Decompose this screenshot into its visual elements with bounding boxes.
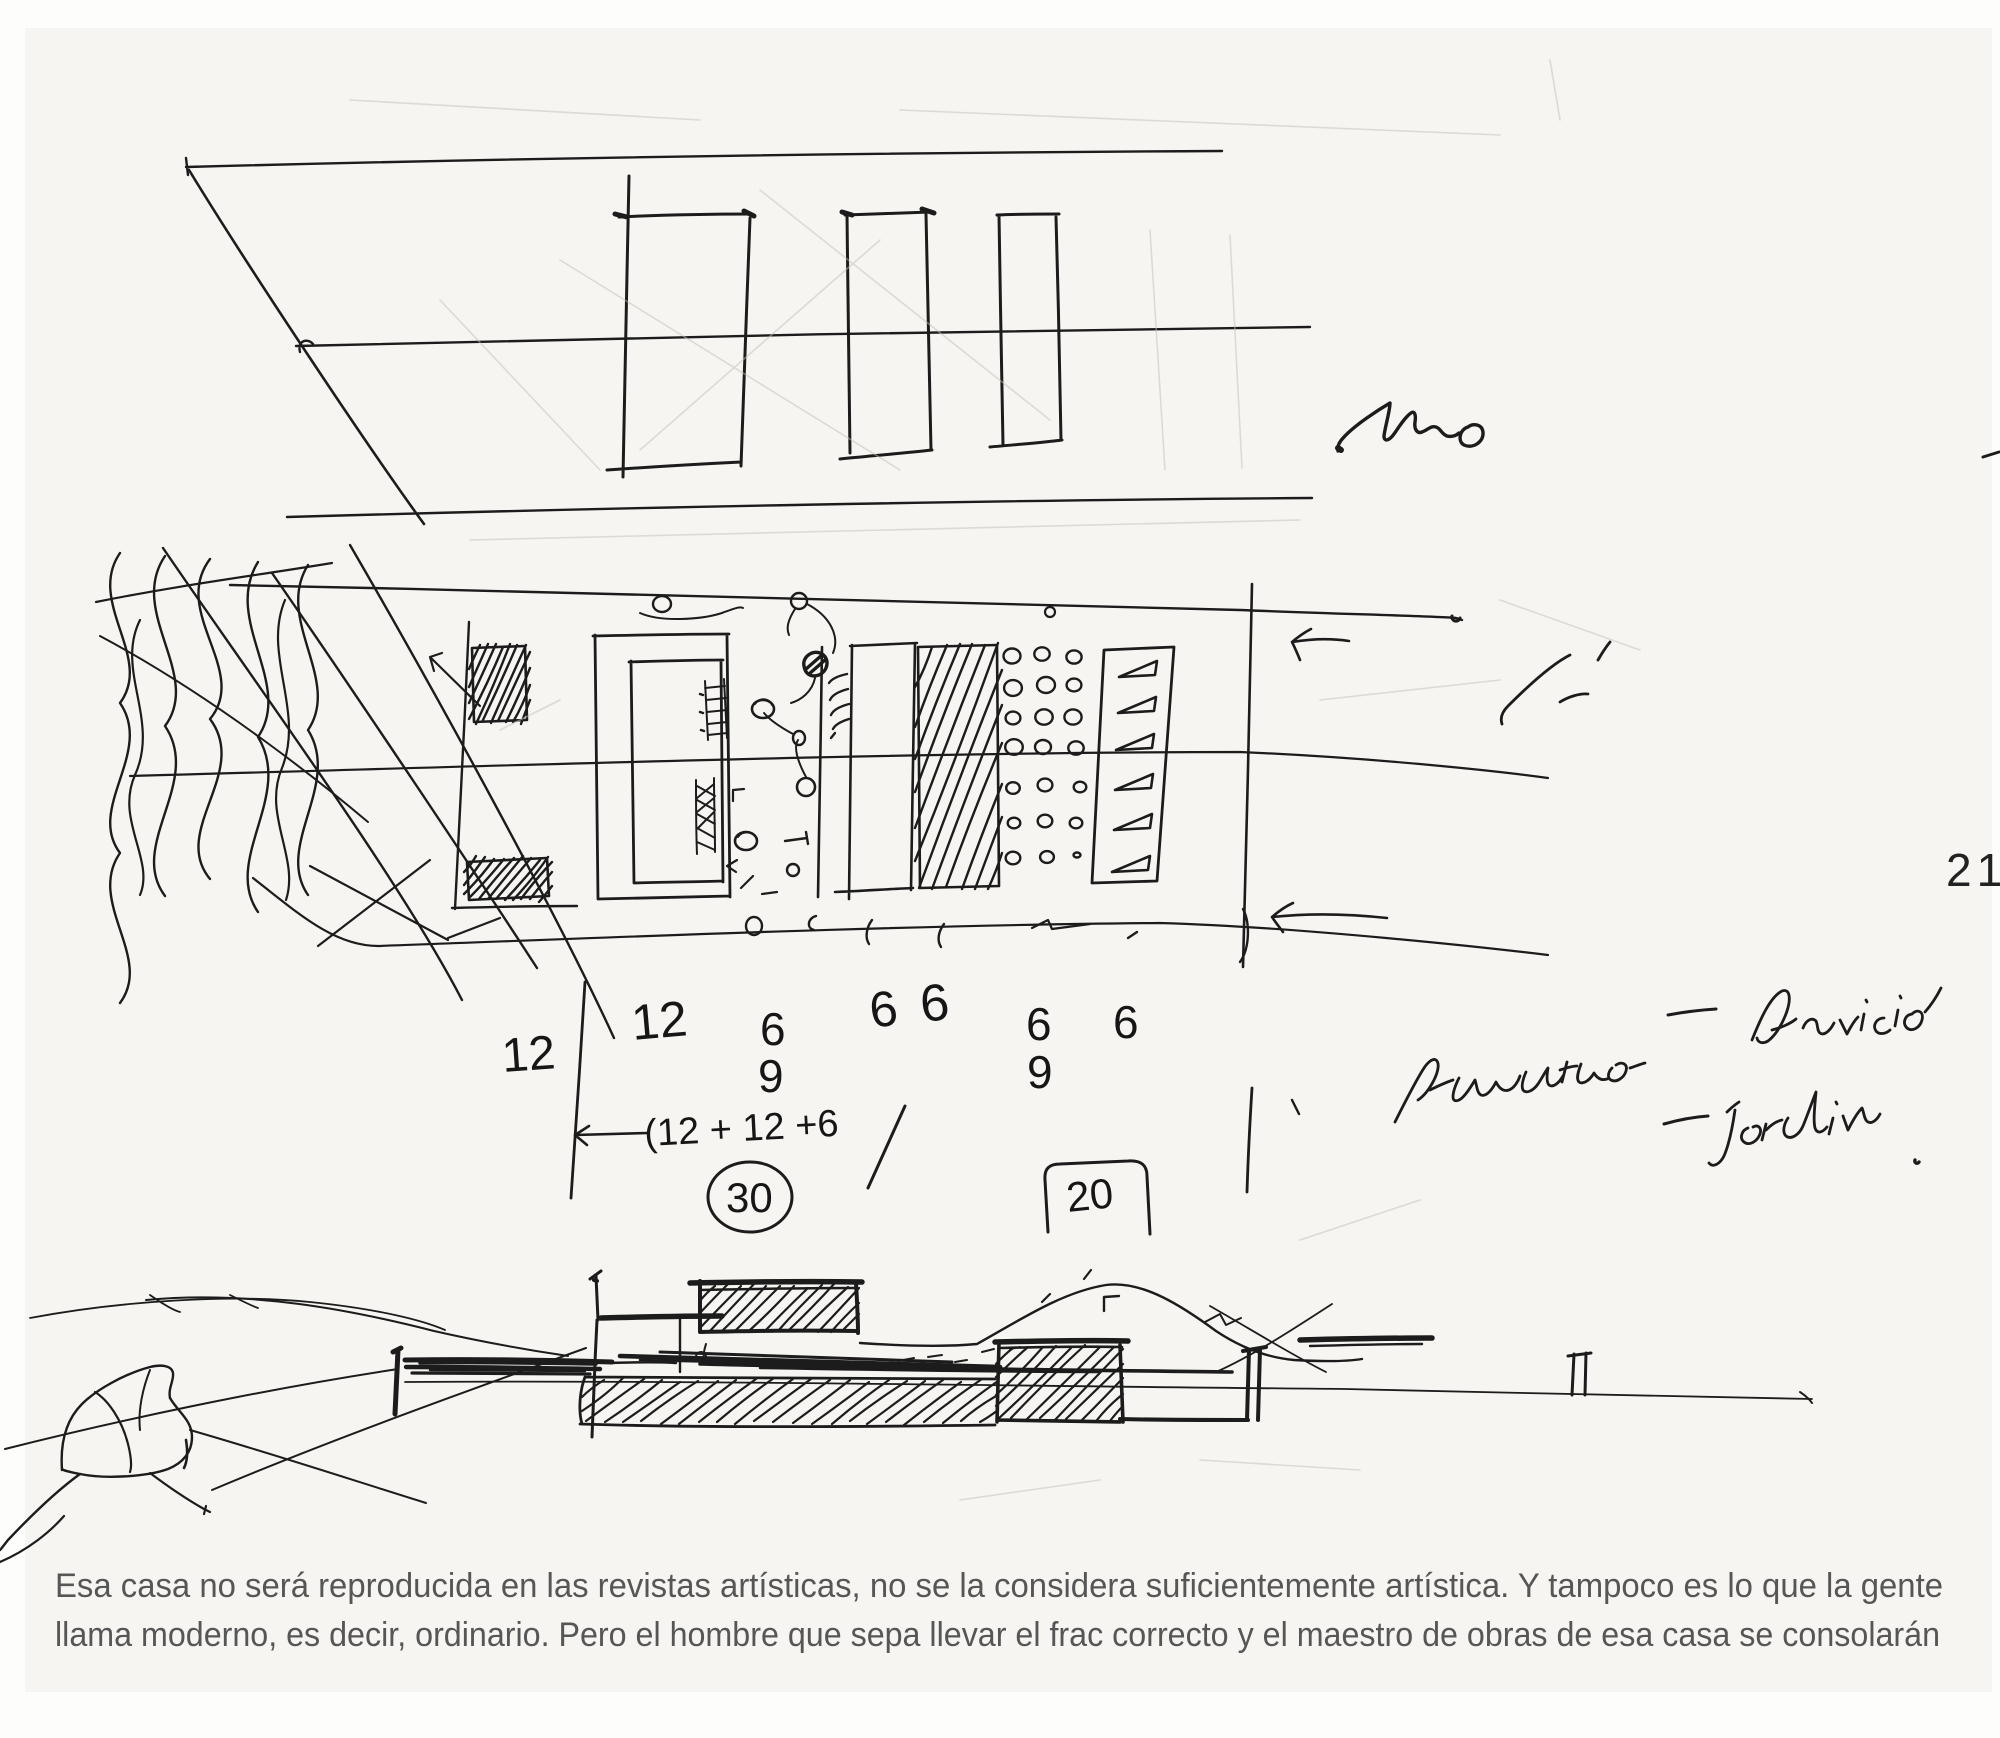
svg-text:6: 6 <box>1026 998 1052 1050</box>
svg-text:20: 20 <box>1064 1169 1115 1221</box>
svg-text:6: 6 <box>1113 996 1139 1048</box>
svg-text:9: 9 <box>758 1050 784 1102</box>
svg-text:Esa casa no será reproducida e: Esa casa no será reproducida en las revi… <box>55 1567 1943 1605</box>
svg-text:12: 12 <box>629 990 689 1051</box>
svg-text:12: 12 <box>500 1026 557 1083</box>
svg-text:9: 9 <box>1027 1046 1053 1098</box>
svg-text:llama moderno, es decir, ordin: llama moderno, es decir, ordinario. Pero… <box>55 1616 1940 1654</box>
svg-text:21: 21 <box>1946 844 2000 896</box>
svg-text:30: 30 <box>726 1174 773 1221</box>
svg-text:6: 6 <box>760 1003 786 1055</box>
svg-text:6: 6 <box>917 973 952 1034</box>
